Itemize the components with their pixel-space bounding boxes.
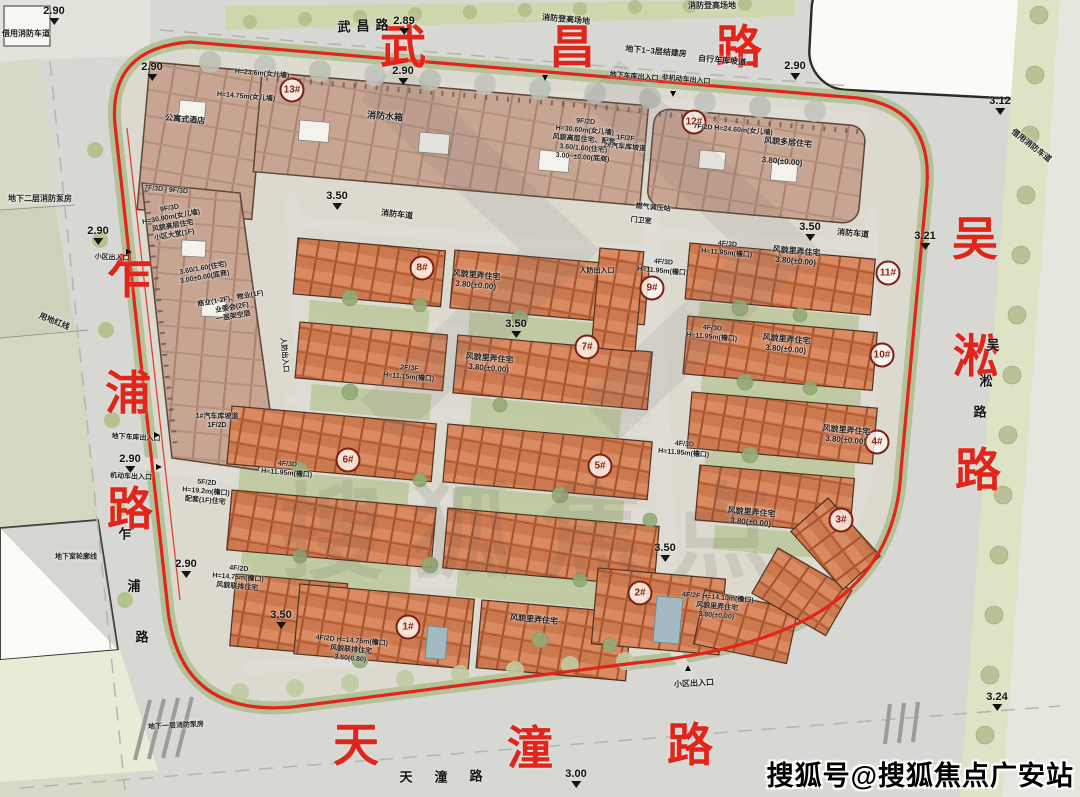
- sohu-watermark: 搜狐号@搜狐焦点广安站: [767, 754, 1074, 793]
- site-plan-graphics: [0, 0, 1080, 797]
- site-plan: 武昌路乍浦路吴淞路天潼路武昌路乍浦路吴淞路天潼路2.902.902.892.90…: [0, 0, 1080, 797]
